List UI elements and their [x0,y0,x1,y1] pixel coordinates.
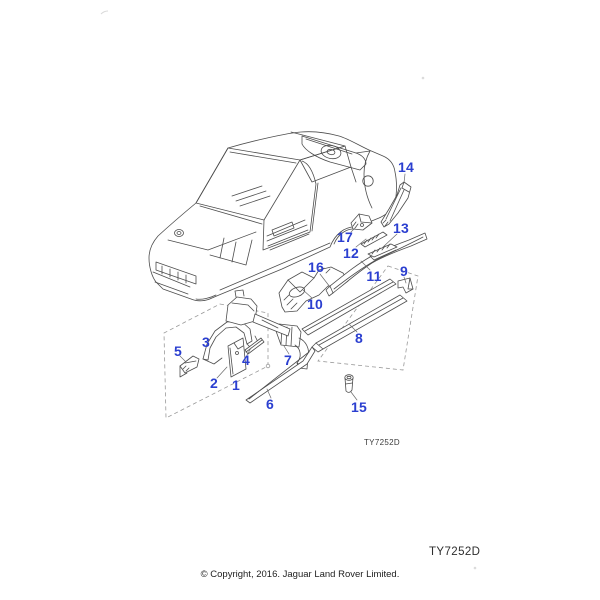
copyright-line: © Copyright, 2016. Jaguar Land Rover Lim… [0,570,600,580]
callout-9: 9 [400,264,408,278]
parts-diagram-page: 1 2 3 4 5 6 7 8 9 10 11 12 13 14 15 16 1… [0,0,600,600]
part-9-bracket [398,278,413,293]
callout-12: 12 [343,246,359,260]
exploded-parts [180,182,427,403]
callout-11: 11 [366,269,381,283]
exploded-parts-drawing [0,0,600,600]
callout-17: 17 [337,230,353,244]
callout-7: 7 [284,353,292,367]
part-17-bracket [351,214,372,230]
dashed-box-node [266,364,270,368]
figure-code: TY7252D [364,439,400,447]
part-6-strip [246,347,315,403]
callout-8: 8 [355,331,363,345]
callout-10: 10 [307,297,323,311]
callout-16: 16 [308,260,324,274]
callout-6: 6 [266,397,274,411]
callout-1: 1 [232,378,240,392]
callout-13: 13 [393,221,409,235]
callout-3: 3 [202,335,210,349]
callout-2: 2 [210,376,218,390]
callout-5: 5 [174,344,182,358]
callout-14: 14 [398,160,414,174]
callout-15: 15 [351,400,367,414]
part-15-plug [345,375,353,393]
page-code: TY7252D [429,547,480,559]
callout-4: 4 [242,353,250,367]
